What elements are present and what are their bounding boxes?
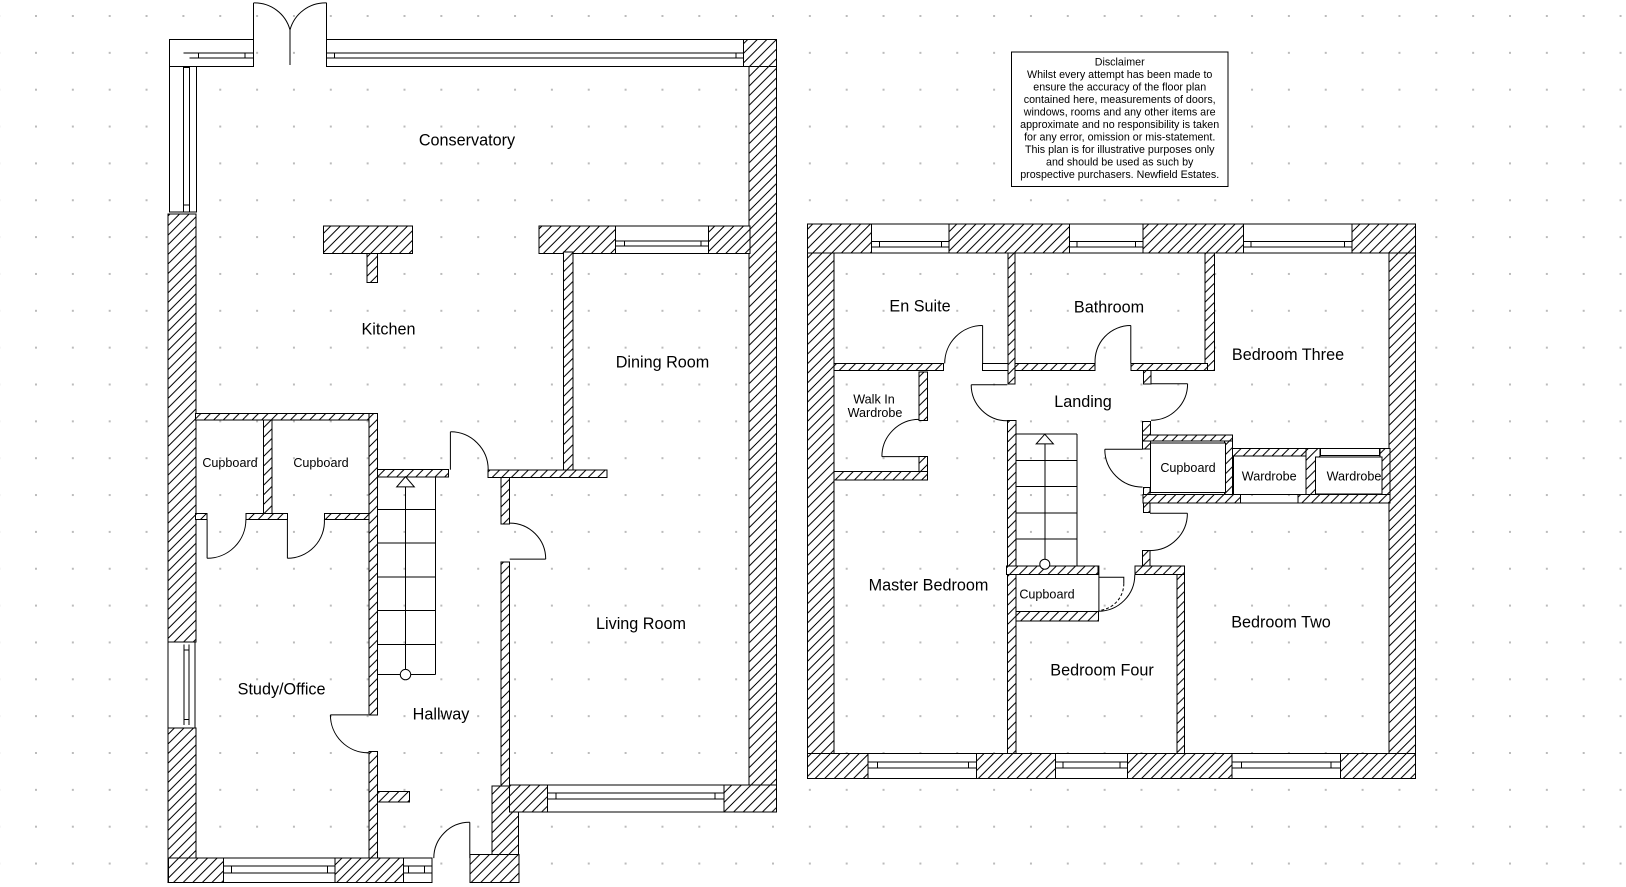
svg-text:Kitchen: Kitchen <box>362 321 416 339</box>
svg-text:This plan is for illustrative: This plan is for illustrative purposes o… <box>1025 144 1215 156</box>
svg-text:Conservatory: Conservatory <box>419 132 516 150</box>
svg-text:En Suite: En Suite <box>889 298 950 316</box>
svg-text:Disclaimer: Disclaimer <box>1095 57 1145 69</box>
svg-text:for any error, omission or mis: for any error, omission or mis-statement… <box>1024 132 1215 144</box>
svg-text:and should be used as such by: and should be used as such by <box>1046 157 1194 169</box>
svg-text:prospective purchasers. Newfie: prospective purchasers. Newfield Estates… <box>1020 169 1219 181</box>
svg-text:Whilst every attempt has been: Whilst every attempt has been made to <box>1027 69 1212 81</box>
svg-text:Landing: Landing <box>1054 393 1112 411</box>
svg-text:Dining Room: Dining Room <box>616 354 710 372</box>
svg-text:Cupboard: Cupboard <box>1019 587 1074 601</box>
svg-text:Bedroom Four: Bedroom Four <box>1050 662 1154 680</box>
svg-text:Walk In: Walk In <box>853 392 895 406</box>
svg-text:Cupboard: Cupboard <box>1160 461 1215 475</box>
svg-text:ensure the accuracy of the flo: ensure the accuracy of the floor plan <box>1033 82 1206 94</box>
svg-text:Living Room: Living Room <box>596 615 686 633</box>
svg-text:Hallway: Hallway <box>413 706 471 724</box>
svg-text:contained here, measurements o: contained here, measurements of doors, <box>1024 94 1216 106</box>
svg-text:Cupboard: Cupboard <box>293 456 348 470</box>
svg-text:Wardrobe: Wardrobe <box>1242 469 1297 483</box>
svg-text:Cupboard: Cupboard <box>202 456 257 470</box>
svg-text:Bedroom Three: Bedroom Three <box>1232 346 1344 364</box>
svg-text:Study/Office: Study/Office <box>238 680 326 698</box>
svg-text:Master Bedroom: Master Bedroom <box>869 577 989 595</box>
svg-text:Bathroom: Bathroom <box>1074 299 1144 317</box>
svg-text:Wardrobe: Wardrobe <box>1327 469 1382 483</box>
svg-text:Bedroom Two: Bedroom Two <box>1231 614 1331 632</box>
svg-text:approximate and no responsibil: approximate and no responsibility is tak… <box>1020 119 1219 131</box>
svg-text:windows, rooms and any other i: windows, rooms and any other items are <box>1023 107 1216 119</box>
svg-text:Wardrobe: Wardrobe <box>848 406 903 420</box>
